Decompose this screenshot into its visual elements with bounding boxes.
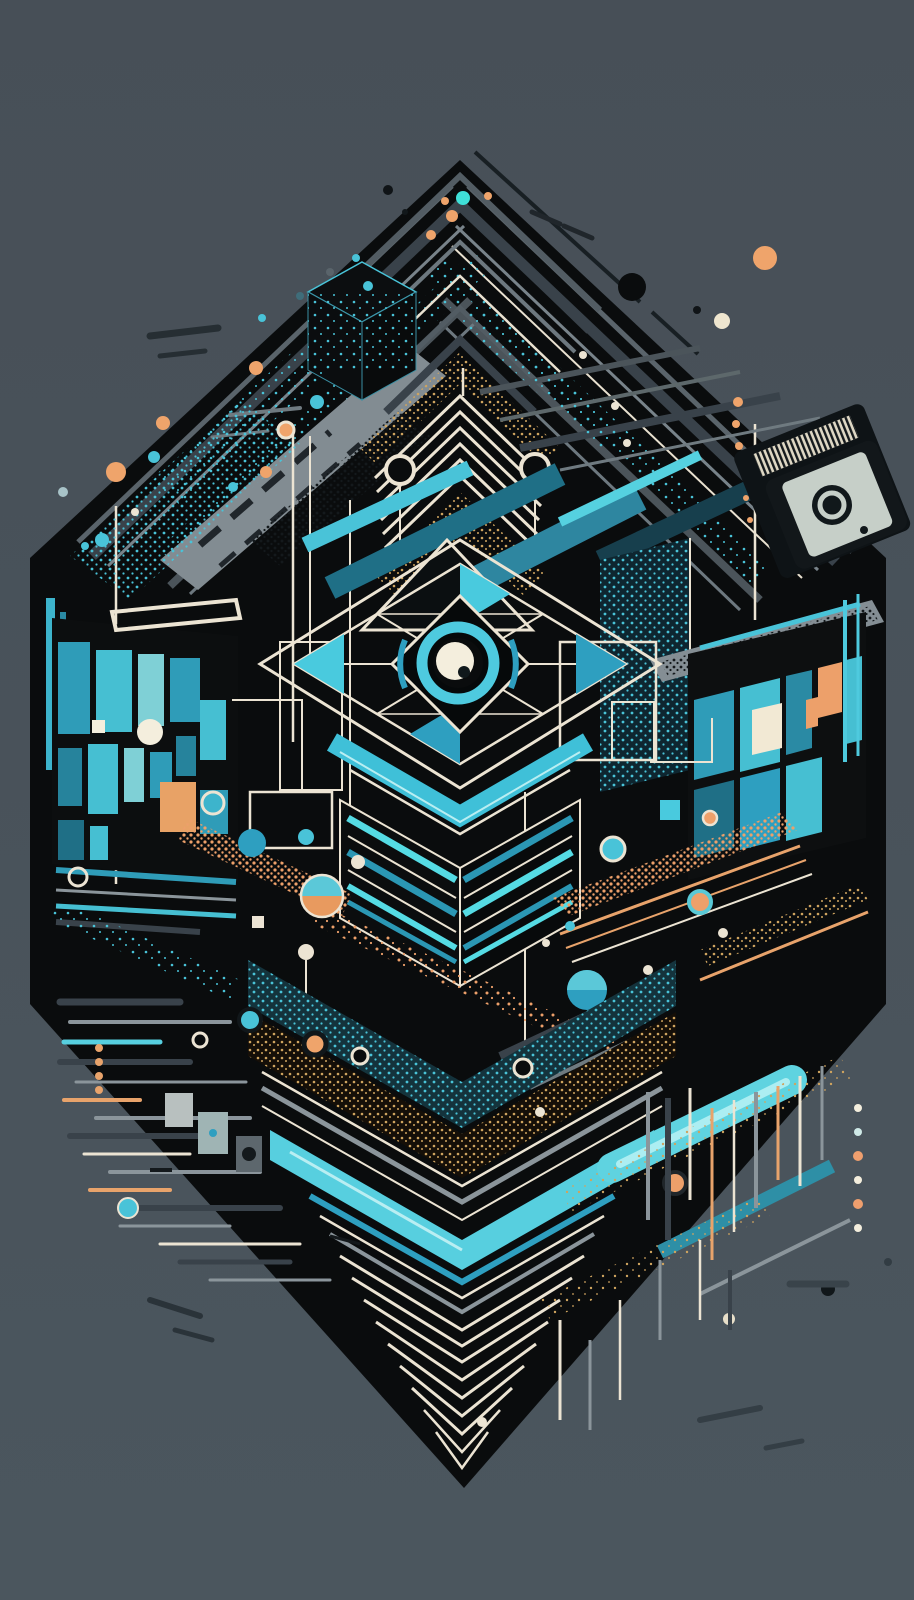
cream-chip xyxy=(252,916,264,928)
dot-cyan xyxy=(310,395,324,409)
abstract-artwork xyxy=(0,0,914,1600)
dot-orange xyxy=(95,1072,103,1080)
right-grid-cell-orange xyxy=(806,697,818,729)
bg-dot xyxy=(693,306,701,314)
edge-bump xyxy=(618,273,646,301)
ringed-cyan-circle xyxy=(202,792,224,814)
side-dot xyxy=(854,1176,862,1184)
left-grid-cell xyxy=(200,700,226,760)
left-grid-cell xyxy=(124,748,144,802)
dot-cream xyxy=(611,402,619,410)
left-grid-cell xyxy=(90,826,108,860)
right-grid-cell-orange xyxy=(818,662,842,718)
dot-orange xyxy=(249,361,263,375)
bg-dot xyxy=(383,185,393,195)
bg-dot-orange xyxy=(753,246,777,270)
dot-cream xyxy=(351,855,365,869)
ringed-orange-dot xyxy=(703,811,717,825)
dot-orange xyxy=(441,197,449,205)
dot-cream xyxy=(542,939,550,947)
dot-orange xyxy=(484,192,492,200)
dot-orange xyxy=(446,210,458,222)
ringed-dark-dot xyxy=(352,1048,368,1064)
left-grid-cell xyxy=(58,642,90,734)
ringed-orange-dot xyxy=(304,1033,326,1055)
dot-orange xyxy=(426,230,436,240)
artwork-stage xyxy=(0,0,914,1600)
dot-cream xyxy=(535,1107,545,1117)
dot-slate xyxy=(326,268,334,276)
side-dot xyxy=(854,1224,862,1232)
dot-teal xyxy=(238,829,266,857)
dot-orange xyxy=(747,517,753,523)
dot-cyan xyxy=(95,533,109,547)
ringed-dark-dot xyxy=(514,1059,532,1077)
dot-orange xyxy=(735,442,743,450)
dot-orange xyxy=(732,420,740,428)
dot-cyan xyxy=(363,281,373,291)
left-grid-cream-dot xyxy=(137,719,163,745)
dot-cream xyxy=(623,439,631,447)
ringed-cyan-circle xyxy=(118,1198,138,1218)
dot-cream xyxy=(718,928,728,938)
ring-pin xyxy=(386,456,414,484)
dot-teal xyxy=(296,292,304,300)
dot-cyan xyxy=(228,482,238,492)
dot-orange xyxy=(156,416,170,430)
right-grid-cell-cream xyxy=(752,703,782,755)
dot-cream xyxy=(643,965,653,975)
dot-cyan xyxy=(298,829,314,845)
side-dot xyxy=(854,1128,862,1136)
side-dot xyxy=(854,1104,862,1112)
dot-orange xyxy=(95,1086,103,1094)
dot-cyan xyxy=(352,254,360,262)
left-grid-cell xyxy=(88,744,118,814)
dot-cyan xyxy=(565,921,575,931)
dot-orange xyxy=(95,1044,103,1052)
dot-orange xyxy=(95,1058,103,1066)
light-square xyxy=(165,1093,193,1127)
dot-cyan xyxy=(81,542,89,550)
bg-dot-cream xyxy=(714,313,730,329)
ringed-orange-circle xyxy=(689,891,711,913)
dot-dark xyxy=(402,209,408,215)
dot-orange xyxy=(743,495,749,501)
dot-cyan xyxy=(258,314,266,322)
iso-cube-dots xyxy=(308,292,416,370)
left-grid-cell xyxy=(58,748,82,806)
lens-dot xyxy=(860,526,868,534)
dot-orange xyxy=(733,397,743,407)
dot-orange xyxy=(260,466,272,478)
dot-cyan-bright xyxy=(456,191,470,205)
eye-glint xyxy=(458,666,470,678)
pin-dot xyxy=(298,944,314,960)
right-grid-cell xyxy=(846,656,862,744)
left-grid-cell xyxy=(96,650,132,732)
dot-orange xyxy=(106,462,126,482)
bg-dot xyxy=(884,1258,892,1266)
left-grid-cell xyxy=(170,658,200,722)
ringed-cyan-circle xyxy=(601,837,625,861)
side-dot xyxy=(853,1199,863,1209)
left-grid-cell xyxy=(138,654,164,726)
cyan-chip xyxy=(660,800,680,820)
left-grid-cell xyxy=(58,820,84,860)
ringed-cyan-circle xyxy=(239,1009,261,1031)
light-square-dot xyxy=(209,1129,217,1137)
dot-pale xyxy=(58,487,68,497)
dot-cream xyxy=(131,508,139,516)
side-dot xyxy=(853,1151,863,1161)
left-grid-cell xyxy=(176,736,196,776)
dot-cyan xyxy=(148,451,160,463)
dark-square-dot xyxy=(242,1147,256,1161)
right-grid-cell xyxy=(694,690,734,780)
dot-cream xyxy=(579,351,587,359)
dot-cream xyxy=(477,1417,487,1427)
ringed-orange-dot xyxy=(278,422,294,438)
left-grid-cream-square xyxy=(92,720,105,733)
